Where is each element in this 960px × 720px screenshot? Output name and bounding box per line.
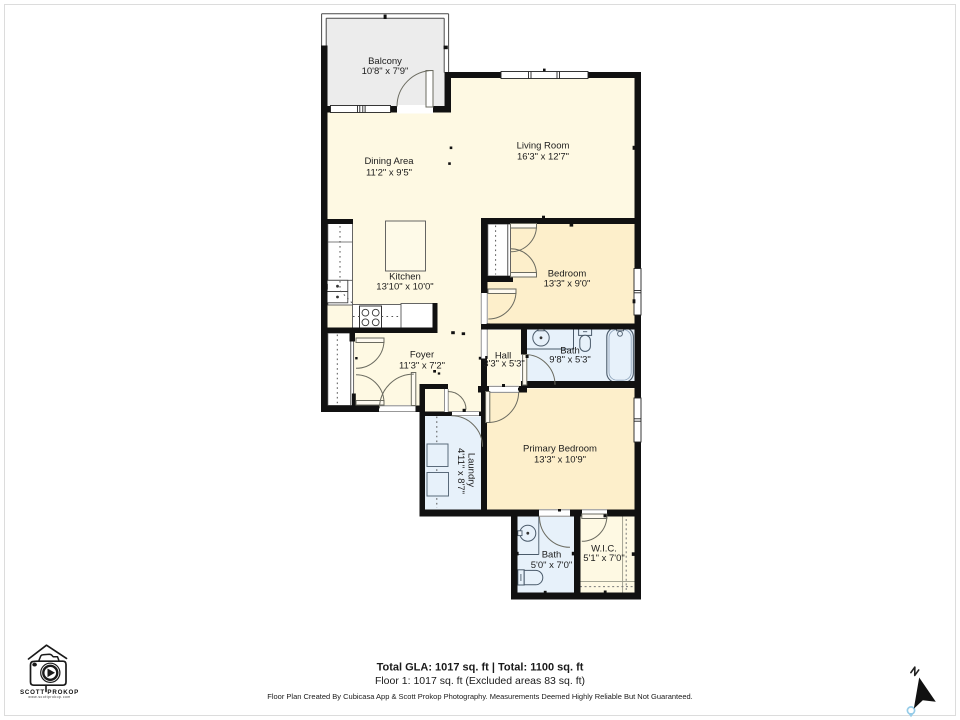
svg-text:13'3" x 9'0": 13'3" x 9'0"	[544, 279, 591, 290]
svg-text:16'3" x 12'7": 16'3" x 12'7"	[517, 152, 569, 163]
svg-text:Foyer: Foyer	[410, 350, 434, 361]
svg-text:5'1" x 7'0": 5'1" x 7'0"	[583, 553, 625, 564]
svg-text:Bath: Bath	[542, 550, 562, 561]
svg-text:10'8" x 7'9": 10'8" x 7'9"	[362, 66, 409, 77]
svg-text:13'10" x 10'0": 13'10" x 10'0"	[376, 282, 433, 293]
svg-text:5'0" x 7'0": 5'0" x 7'0"	[531, 560, 573, 571]
svg-text:11'2" x 9'5": 11'2" x 9'5"	[366, 168, 412, 179]
svg-text:Primary Bedroom: Primary Bedroom	[523, 444, 597, 455]
svg-text:4'11" x 8'7": 4'11" x 8'7"	[455, 448, 466, 494]
svg-text:3'3" x 5'3": 3'3" x 5'3"	[483, 359, 525, 370]
svg-text:Floor 1: 1017 sq. ft (Excluded: Floor 1: 1017 sq. ft (Excluded areas 83 …	[375, 675, 585, 687]
svg-text:Living Room: Living Room	[517, 140, 570, 151]
svg-text:Dining Area: Dining Area	[364, 156, 414, 167]
svg-text:13'3" x 10'9": 13'3" x 10'9"	[534, 455, 586, 466]
svg-text:11'3" x 7'2": 11'3" x 7'2"	[399, 361, 445, 372]
svg-text:Total GLA: 1017 sq. ft | Total: Total GLA: 1017 sq. ft | Total: 1100 sq.…	[377, 662, 584, 674]
svg-text:9'8" x 5'3": 9'8" x 5'3"	[549, 355, 591, 366]
svg-text:Floor Plan Created By Cubicasa: Floor Plan Created By Cubicasa App & Sco…	[267, 692, 693, 701]
svg-text:www.scottprokop.com: www.scottprokop.com	[28, 695, 70, 699]
